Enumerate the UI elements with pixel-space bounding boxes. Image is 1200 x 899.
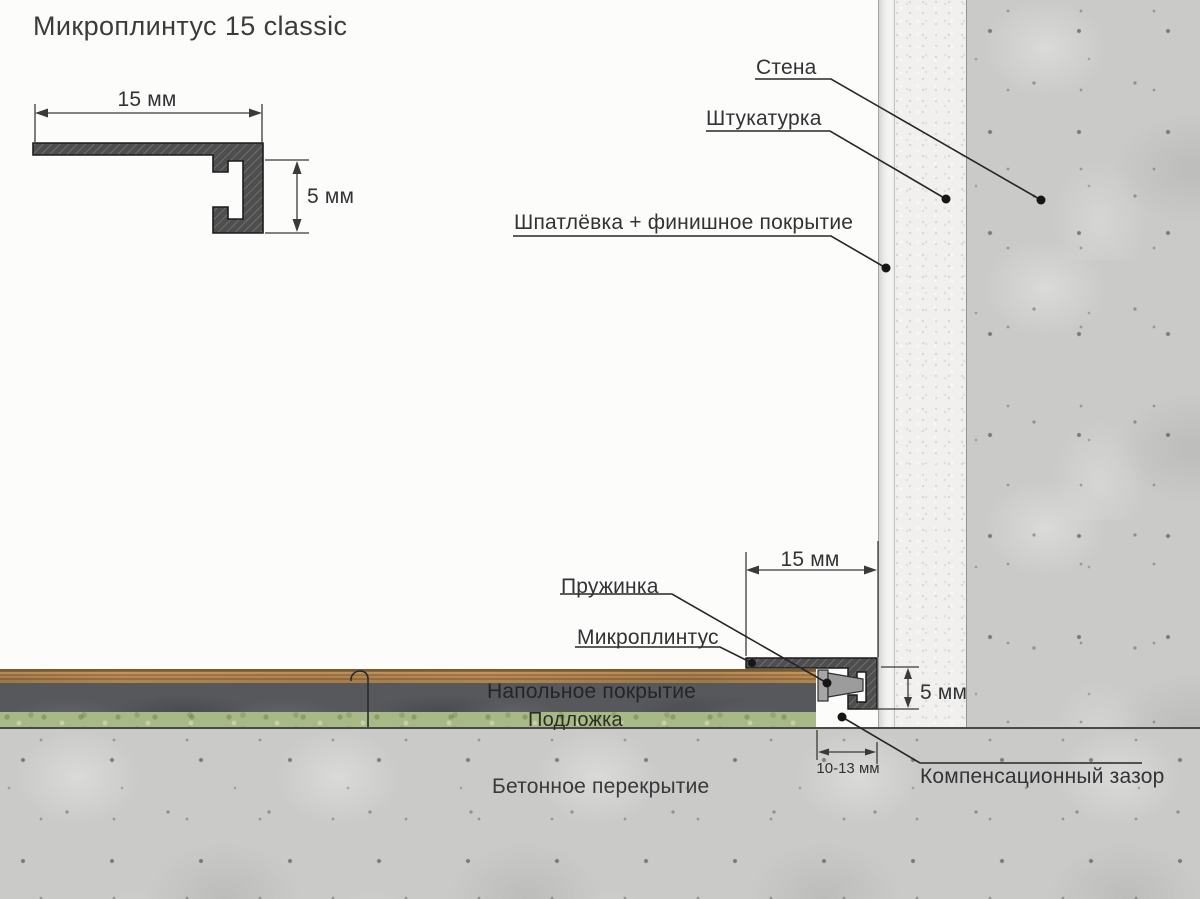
underlay-label: Подложка [528,710,623,730]
leader-dot [838,713,847,722]
leader-dot [942,195,951,204]
arrowhead [249,109,262,118]
leader-dot [1037,196,1046,205]
arrowhead [35,109,48,118]
dimension-label-width-top: 15 мм [97,89,197,110]
plaster-label: Штукатурка [706,108,822,129]
dimension-label-width-bottom: 15 мм [760,549,860,570]
dimension-label-gap: 10-13 мм [813,761,883,776]
diagram-canvas: Микроплинтус 15 classic 15 мм 5 мм Стена… [0,0,1200,899]
arrowhead [818,749,829,756]
arrowhead [904,697,912,708]
arrowhead [746,566,759,575]
leader-dot [882,264,891,273]
break-mark [351,671,368,727]
arrowhead [293,219,302,232]
dimension-gap [817,730,877,764]
arrowhead [865,749,876,756]
page-title: Микроплинтус 15 classic [33,13,347,40]
skirting-profile-section [33,143,263,233]
dimension-label-height-top: 5 мм [307,186,354,207]
concrete-slab-label: Бетонное перекрытие [492,776,709,797]
putty-finish-label: Шпатлёвка + финишное покрытие [514,212,853,233]
arrowhead [864,566,877,575]
spring-label: Пружинка [561,576,659,597]
leader-dot [823,679,832,688]
floor-covering-label: Напольное покрытие [487,681,696,702]
leader-wall [755,79,1041,200]
compensation-gap-label: Компенсационный зазор [920,766,1165,787]
arrowhead [904,668,912,679]
leader-plaster [706,131,946,199]
skirting-label: Микроплинтус [577,627,719,648]
leader-putty [513,236,886,268]
leader-dot [748,659,756,667]
dimension-label-height-bottom: 5 мм [920,682,967,703]
leader-skirting [575,647,752,663]
arrowhead [293,161,302,174]
leader-gap [842,717,1142,763]
dimension-5mm-top [265,160,309,233]
wall-label: Стена [756,57,817,78]
